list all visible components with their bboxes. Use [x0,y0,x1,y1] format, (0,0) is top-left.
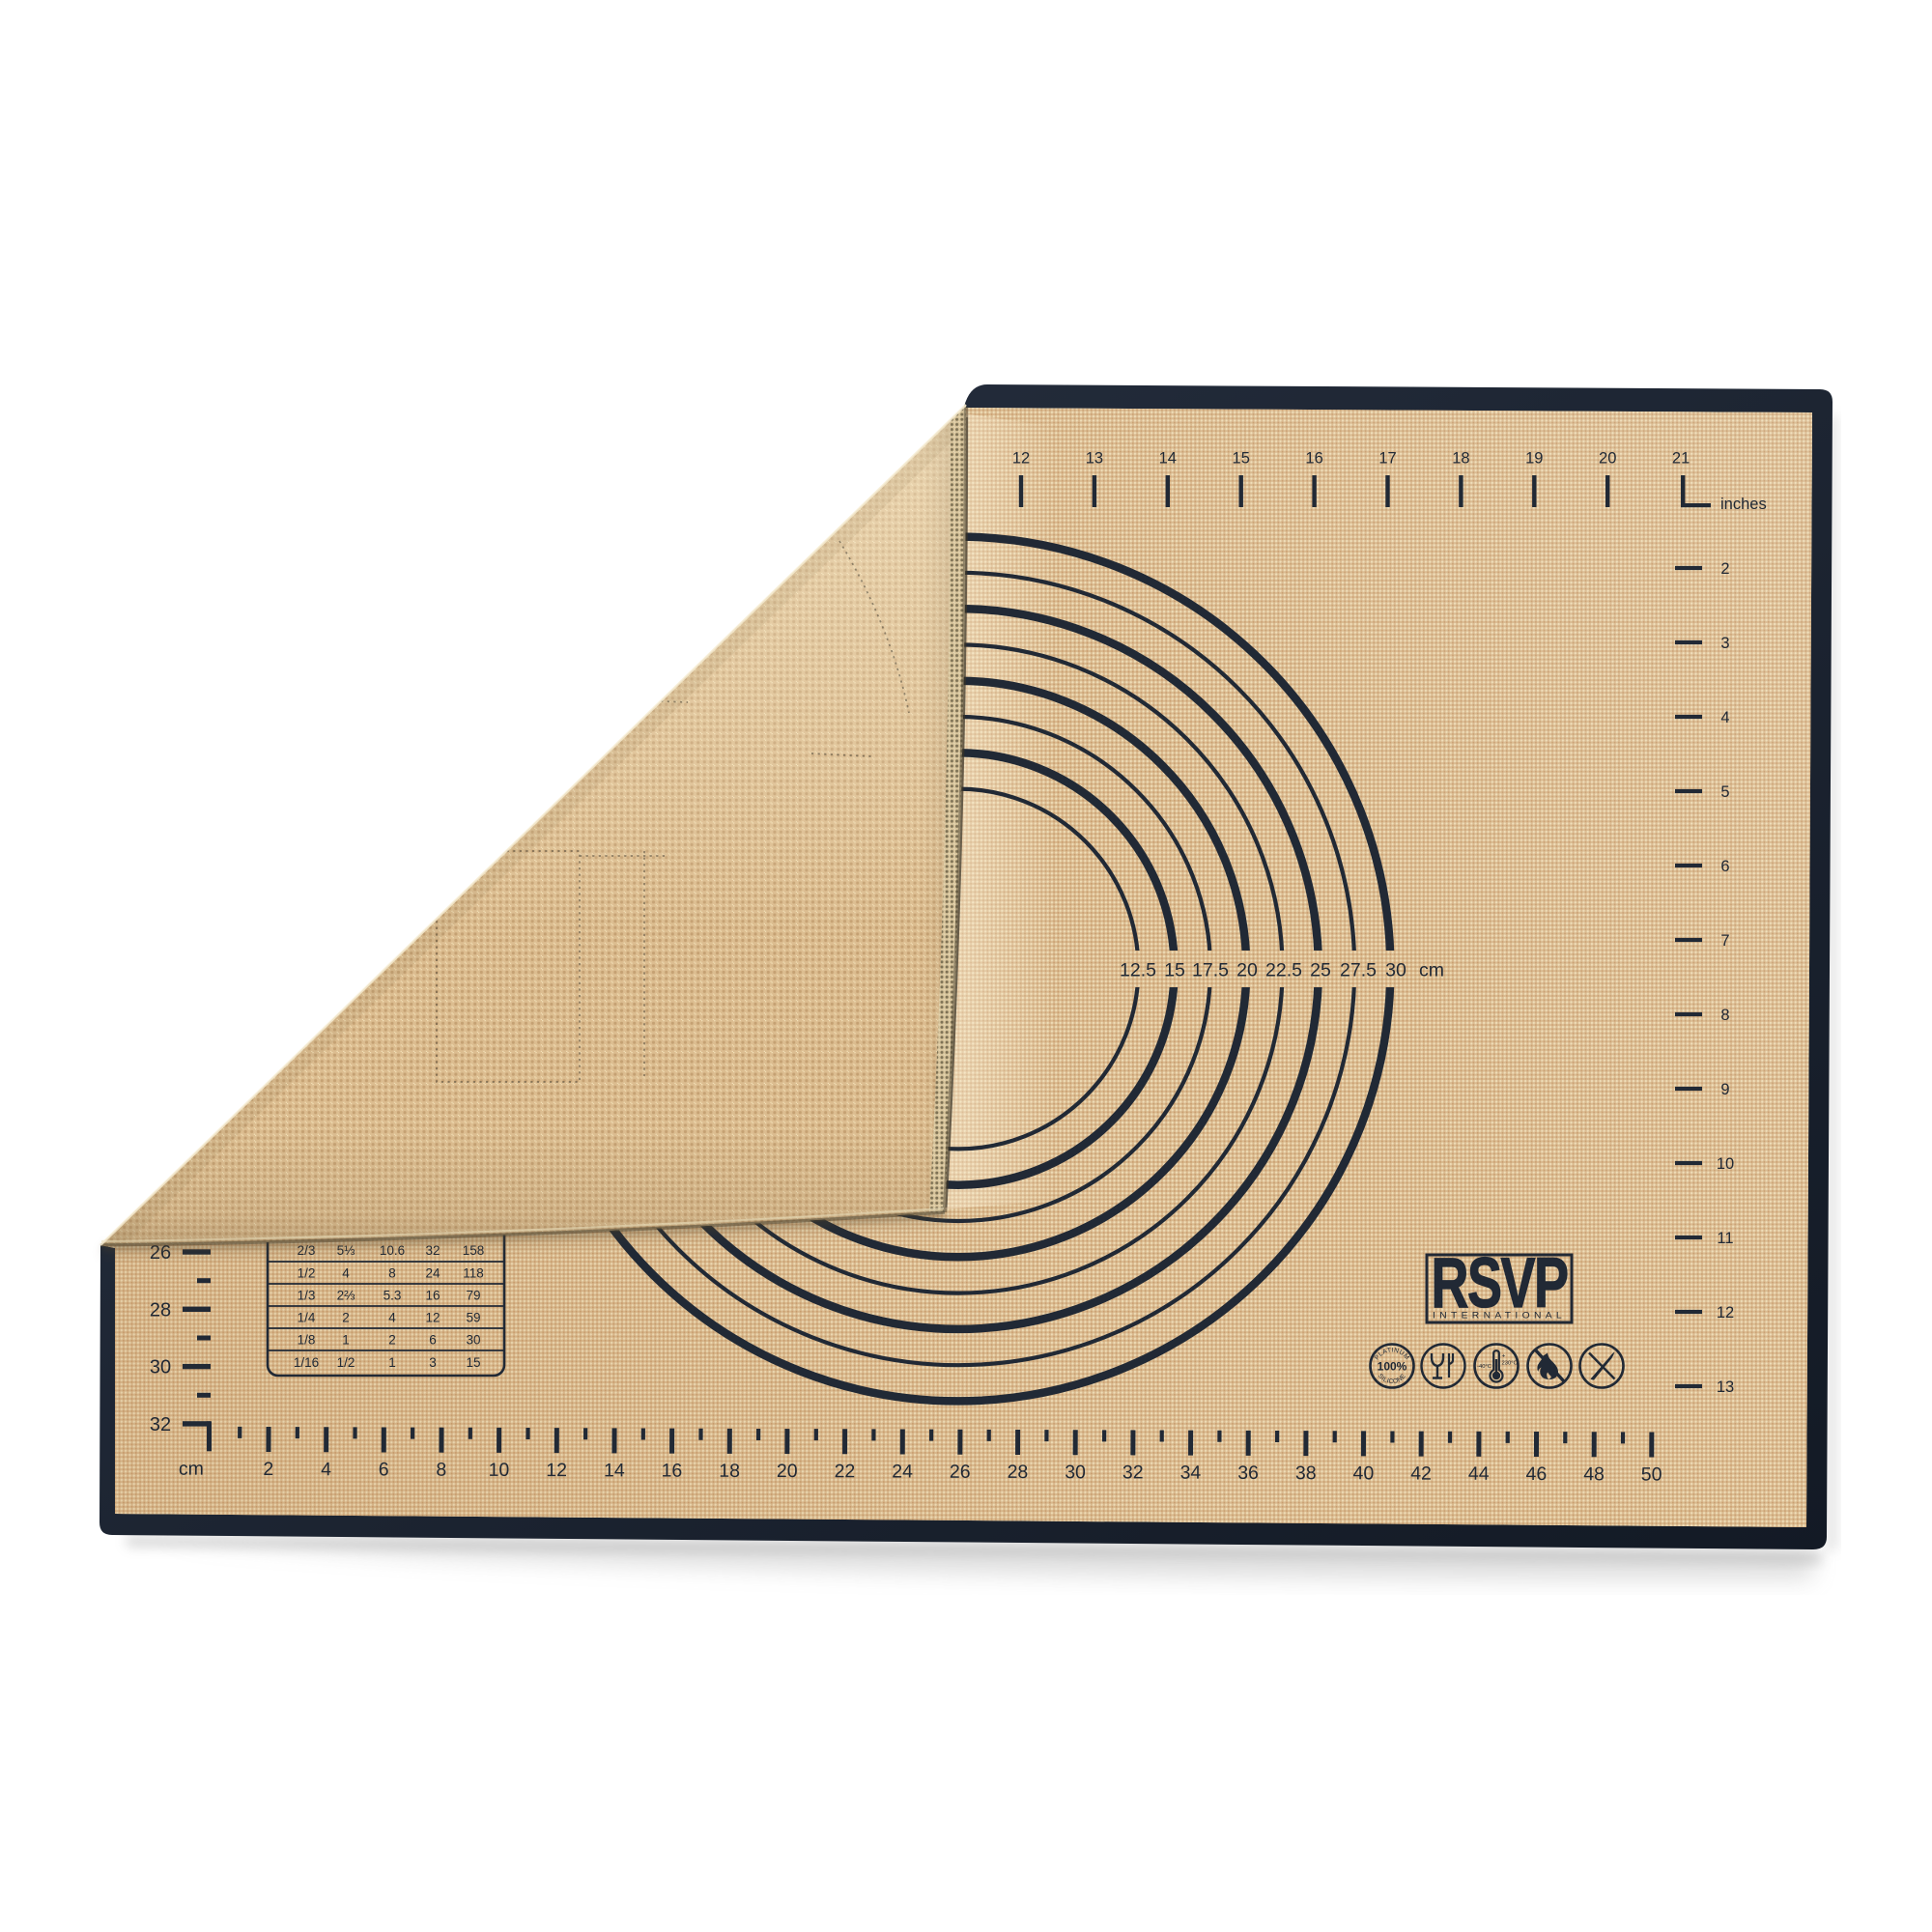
svg-text:2: 2 [342,1310,350,1324]
svg-text:10: 10 [1717,1155,1734,1173]
svg-text:11: 11 [1717,1230,1733,1247]
svg-text:13: 13 [1717,1378,1734,1396]
svg-text:27.5: 27.5 [1340,960,1377,981]
svg-text:34: 34 [1180,1463,1202,1484]
svg-text:22: 22 [835,1461,856,1482]
svg-text:+: + [1502,1353,1506,1360]
svg-text:28: 28 [1008,1462,1029,1483]
svg-text:24: 24 [892,1461,913,1482]
svg-text:59: 59 [466,1310,480,1324]
svg-text:-40°C: -40°C [1477,1364,1492,1370]
svg-text:20: 20 [1236,960,1258,981]
svg-text:3: 3 [429,1355,437,1370]
svg-text:1/3: 1/3 [298,1288,316,1302]
svg-text:42: 42 [1410,1463,1432,1485]
svg-text:12.5: 12.5 [1120,960,1156,981]
svg-text:2: 2 [263,1459,273,1480]
svg-text:100%: 100% [1378,1360,1407,1374]
svg-text:21: 21 [1672,450,1690,468]
svg-text:18: 18 [719,1461,740,1482]
svg-text:4: 4 [321,1459,331,1480]
svg-text:38: 38 [1295,1463,1317,1484]
svg-text:8: 8 [388,1265,396,1280]
svg-text:230°C: 230°C [1502,1361,1518,1367]
svg-text:cm: cm [179,1459,204,1480]
svg-text:18: 18 [1452,450,1469,468]
svg-text:6: 6 [429,1332,437,1347]
svg-text:20: 20 [1599,450,1616,468]
svg-text:79: 79 [466,1288,480,1302]
svg-text:4: 4 [388,1310,396,1324]
svg-text:1/2: 1/2 [298,1265,316,1280]
svg-text:16: 16 [425,1288,440,1302]
svg-text:32: 32 [150,1414,171,1435]
svg-text:5: 5 [1720,783,1729,801]
svg-text:30: 30 [466,1332,480,1347]
svg-text:25: 25 [1310,960,1331,981]
svg-text:28: 28 [150,1299,171,1321]
svg-text:12: 12 [546,1460,567,1481]
svg-text:15: 15 [1164,960,1185,981]
svg-text:1: 1 [388,1355,396,1370]
svg-text:30: 30 [150,1357,171,1378]
svg-text:2: 2 [1720,560,1729,578]
svg-text:30: 30 [1065,1462,1086,1483]
svg-text:1/4: 1/4 [298,1310,316,1324]
svg-text:44: 44 [1468,1463,1490,1485]
svg-text:10: 10 [489,1460,510,1481]
svg-text:4: 4 [342,1265,350,1280]
svg-text:4: 4 [1720,709,1729,726]
svg-text:7: 7 [1720,932,1729,950]
svg-text:19: 19 [1525,450,1543,468]
svg-text:6: 6 [379,1459,389,1480]
svg-text:48: 48 [1583,1463,1605,1485]
svg-text:50: 50 [1641,1463,1662,1485]
svg-text:2: 2 [388,1332,396,1347]
svg-text:15: 15 [1233,450,1250,468]
svg-text:36: 36 [1237,1463,1259,1484]
svg-text:cm: cm [1419,960,1444,981]
svg-text:13: 13 [1086,450,1103,468]
svg-text:8: 8 [1720,1007,1729,1024]
svg-text:40: 40 [1352,1463,1374,1484]
svg-text:5.3: 5.3 [384,1288,402,1302]
svg-text:118: 118 [463,1265,484,1280]
svg-text:20: 20 [777,1461,798,1482]
svg-text:14: 14 [1159,450,1177,468]
svg-text:17.5: 17.5 [1192,960,1229,981]
svg-text:3: 3 [1720,635,1729,652]
svg-text:26: 26 [950,1462,971,1483]
svg-text:2⅔: 2⅔ [337,1288,355,1302]
svg-text:46: 46 [1525,1463,1547,1485]
svg-text:22.5: 22.5 [1265,960,1302,981]
svg-text:8: 8 [436,1460,446,1481]
svg-text:9: 9 [1720,1081,1729,1098]
svg-text:1/2: 1/2 [337,1355,355,1370]
svg-text:6: 6 [1720,858,1729,875]
svg-text:1: 1 [342,1332,350,1347]
svg-text:inches: inches [1720,496,1767,513]
svg-text:17: 17 [1378,450,1396,468]
svg-text:16: 16 [662,1461,683,1482]
svg-text:16: 16 [1305,450,1322,468]
svg-text:12: 12 [1012,450,1030,468]
svg-text:24: 24 [425,1265,440,1280]
svg-text:1/16: 1/16 [294,1355,319,1370]
svg-text:14: 14 [604,1460,625,1481]
svg-text:INTERNATIONAL: INTERNATIONAL [1433,1311,1566,1321]
svg-text:15: 15 [466,1355,480,1370]
svg-text:12: 12 [1717,1304,1734,1321]
svg-text:12: 12 [425,1310,440,1324]
svg-text:30: 30 [1385,960,1406,981]
svg-text:1/8: 1/8 [298,1332,316,1347]
svg-text:32: 32 [1122,1462,1144,1483]
